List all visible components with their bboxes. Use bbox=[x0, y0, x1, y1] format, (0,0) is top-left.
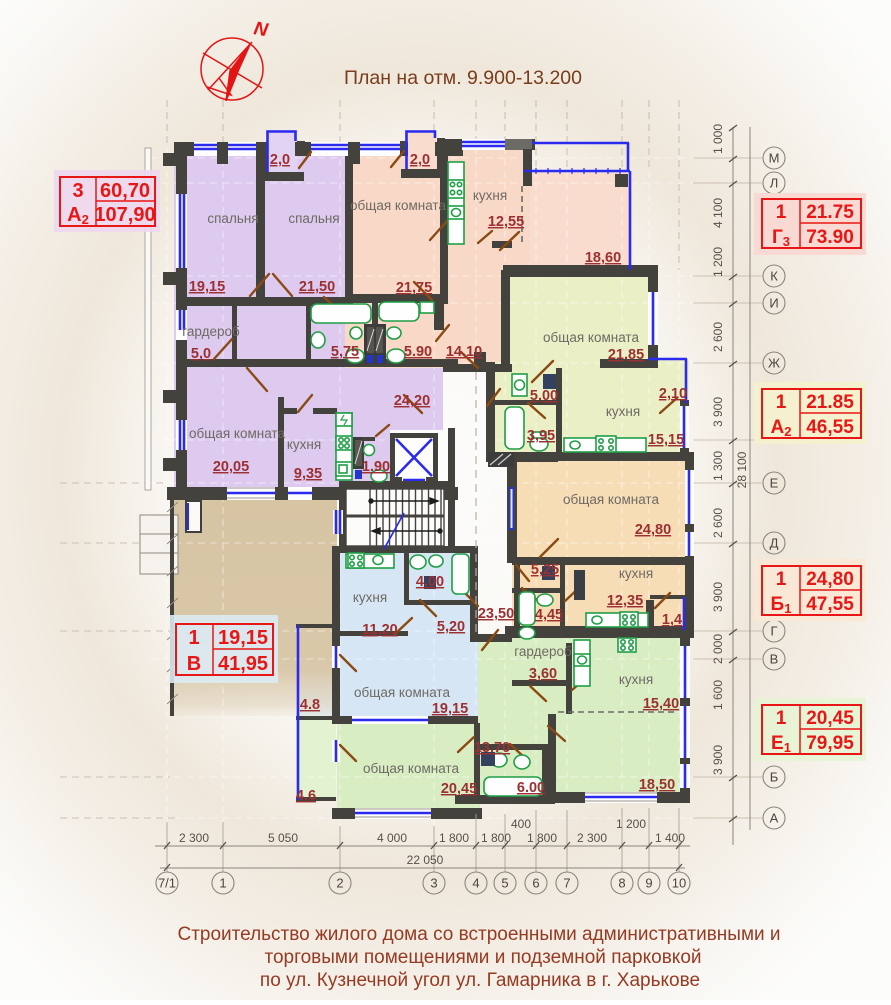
svg-text:12,55: 12,55 bbox=[488, 214, 524, 230]
svg-text:4.6: 4.6 bbox=[296, 788, 316, 804]
svg-text:18,50: 18,50 bbox=[639, 777, 675, 793]
svg-text:А: А bbox=[770, 811, 779, 826]
svg-text:73.90: 73.90 bbox=[806, 227, 854, 248]
svg-text:4 000: 4 000 bbox=[377, 831, 407, 845]
svg-text:торговыми помещениями и подзем: торговыми помещениями и подземной парков… bbox=[264, 947, 701, 968]
svg-text:79,95: 79,95 bbox=[806, 733, 854, 754]
svg-text:гардероб: гардероб bbox=[182, 324, 240, 339]
svg-text:1 800: 1 800 bbox=[439, 831, 469, 845]
svg-text:общая комната: общая комната bbox=[563, 492, 659, 507]
svg-text:1 600: 1 600 bbox=[711, 680, 725, 710]
svg-text:2 300: 2 300 bbox=[179, 831, 209, 845]
svg-text:6.00: 6.00 bbox=[517, 780, 545, 796]
svg-text:1: 1 bbox=[776, 202, 787, 223]
svg-text:1,4: 1,4 bbox=[662, 612, 682, 628]
svg-text:1.90: 1.90 bbox=[362, 459, 390, 475]
svg-text:1: 1 bbox=[776, 569, 787, 590]
svg-text:2,0: 2,0 bbox=[410, 152, 430, 168]
svg-text:18,60: 18,60 bbox=[585, 250, 621, 266]
svg-text:23,50: 23,50 bbox=[478, 606, 514, 622]
svg-text:5,25: 5,25 bbox=[531, 562, 559, 578]
svg-text:1: 1 bbox=[188, 627, 199, 649]
svg-text:5,00: 5,00 bbox=[530, 388, 558, 404]
svg-text:4: 4 bbox=[472, 876, 479, 891]
svg-text:В: В bbox=[187, 653, 201, 675]
svg-text:2: 2 bbox=[336, 876, 343, 891]
svg-text:9: 9 bbox=[645, 876, 652, 891]
svg-text:1 000: 1 000 bbox=[711, 124, 725, 154]
svg-text:1: 1 bbox=[776, 708, 787, 729]
svg-text:60,70: 60,70 bbox=[100, 180, 150, 202]
svg-text:кухня: кухня bbox=[606, 404, 640, 419]
svg-text:спальня: спальня bbox=[207, 211, 258, 226]
svg-text:24,80: 24,80 bbox=[806, 569, 854, 590]
svg-text:28 100: 28 100 bbox=[735, 451, 749, 488]
svg-text:кухня: кухня bbox=[619, 672, 653, 687]
svg-text:План на отм. 9.900-13.200: План на отм. 9.900-13.200 bbox=[344, 67, 582, 89]
svg-text:21,50: 21,50 bbox=[299, 279, 335, 295]
svg-text:5,20: 5,20 bbox=[437, 619, 465, 635]
svg-text:4 100: 4 100 bbox=[711, 198, 725, 228]
svg-text:1 200: 1 200 bbox=[711, 247, 725, 277]
svg-text:гардероб: гардероб bbox=[514, 644, 572, 659]
svg-text:21,75: 21,75 bbox=[396, 280, 432, 296]
svg-text:2,10: 2,10 bbox=[659, 386, 687, 402]
svg-text:2 600: 2 600 bbox=[711, 508, 725, 538]
svg-text:кухня: кухня bbox=[353, 590, 387, 605]
svg-text:3 900: 3 900 bbox=[711, 745, 725, 775]
svg-text:Л: Л bbox=[770, 176, 779, 191]
svg-text:21,85: 21,85 bbox=[608, 347, 644, 363]
svg-text:2,0: 2,0 bbox=[270, 152, 290, 168]
svg-text:Ж: Ж bbox=[768, 356, 780, 371]
svg-text:15,40: 15,40 bbox=[643, 696, 679, 712]
svg-text:5.90: 5.90 bbox=[404, 344, 432, 360]
svg-text:41,95: 41,95 bbox=[218, 653, 268, 675]
svg-text:9,35: 9,35 bbox=[294, 466, 322, 482]
svg-text:общая комната: общая комната bbox=[543, 330, 639, 345]
svg-text:общая комната: общая комната bbox=[363, 761, 459, 776]
svg-text:кухня: кухня bbox=[473, 188, 507, 203]
svg-text:М: М bbox=[769, 151, 780, 166]
svg-text:1 800: 1 800 bbox=[481, 831, 511, 845]
svg-text:Г: Г bbox=[770, 624, 777, 639]
svg-text:4.00: 4.00 bbox=[416, 574, 444, 590]
svg-text:6: 6 bbox=[532, 876, 539, 891]
svg-text:47,55: 47,55 bbox=[806, 594, 854, 615]
svg-text:20,05: 20,05 bbox=[213, 459, 249, 475]
svg-text:2 600: 2 600 bbox=[711, 322, 725, 352]
svg-text:1: 1 bbox=[776, 392, 787, 413]
svg-text:5: 5 bbox=[501, 876, 508, 891]
svg-text:3 900: 3 900 bbox=[711, 397, 725, 427]
svg-text:по ул. Кузнечной угол ул. Гама: по ул. Кузнечной угол ул. Гамарника в г.… bbox=[260, 970, 700, 991]
svg-text:5,0: 5,0 bbox=[191, 346, 211, 362]
svg-text:2 300: 2 300 bbox=[577, 831, 607, 845]
svg-text:И: И bbox=[769, 296, 778, 311]
svg-text:Строительство жилого дома со в: Строительство жилого дома со встроенными… bbox=[177, 924, 780, 945]
svg-text:13.70: 13.70 bbox=[474, 740, 510, 756]
svg-text:2 000: 2 000 bbox=[711, 634, 725, 664]
svg-text:спальня: спальня bbox=[288, 211, 339, 226]
svg-text:7/1: 7/1 bbox=[158, 876, 176, 891]
svg-text:19,15: 19,15 bbox=[432, 701, 468, 717]
svg-text:14.10: 14.10 bbox=[446, 344, 482, 360]
svg-text:1 200: 1 200 bbox=[616, 817, 646, 831]
svg-text:1: 1 bbox=[219, 876, 226, 891]
svg-text:3,95: 3,95 bbox=[527, 428, 555, 444]
svg-text:5 050: 5 050 bbox=[268, 831, 298, 845]
svg-text:Б: Б bbox=[770, 770, 779, 785]
svg-text:24,20: 24,20 bbox=[394, 393, 430, 409]
svg-text:кухня: кухня bbox=[287, 437, 321, 452]
svg-text:22 050: 22 050 bbox=[407, 853, 444, 867]
svg-text:24,80: 24,80 bbox=[635, 522, 671, 538]
svg-text:7: 7 bbox=[563, 876, 570, 891]
svg-text:4,45: 4,45 bbox=[535, 607, 563, 623]
svg-text:10: 10 bbox=[672, 876, 686, 891]
svg-text:1 300: 1 300 bbox=[711, 451, 725, 481]
svg-text:общая комната: общая комната bbox=[350, 198, 446, 213]
svg-text:общая комната: общая комната bbox=[189, 426, 285, 441]
svg-text:кухня: кухня bbox=[619, 566, 653, 581]
svg-text:20,45: 20,45 bbox=[441, 781, 477, 797]
svg-text:11,20: 11,20 bbox=[362, 622, 398, 638]
svg-text:В: В bbox=[770, 652, 779, 667]
svg-text:5,75: 5,75 bbox=[331, 344, 359, 360]
svg-text:3 900: 3 900 bbox=[711, 582, 725, 612]
svg-text:15,15: 15,15 bbox=[648, 432, 684, 448]
svg-text:Д: Д bbox=[770, 536, 779, 551]
svg-text:3: 3 bbox=[430, 876, 437, 891]
svg-text:107,90: 107,90 bbox=[94, 204, 155, 226]
svg-text:1 400: 1 400 bbox=[655, 831, 685, 845]
svg-text:3: 3 bbox=[72, 180, 83, 202]
svg-text:К: К bbox=[770, 269, 778, 284]
svg-text:12,35: 12,35 bbox=[607, 593, 643, 609]
svg-text:20,45: 20,45 bbox=[806, 708, 854, 729]
svg-text:400: 400 bbox=[511, 817, 531, 831]
svg-text:8: 8 bbox=[618, 876, 625, 891]
svg-text:21.85: 21.85 bbox=[806, 392, 854, 413]
svg-text:3,60: 3,60 bbox=[529, 666, 557, 682]
svg-text:4.8: 4.8 bbox=[300, 697, 320, 713]
svg-text:Е: Е bbox=[770, 476, 779, 491]
svg-text:1 800: 1 800 bbox=[527, 831, 557, 845]
svg-text:21.75: 21.75 bbox=[806, 202, 854, 223]
svg-text:46,55: 46,55 bbox=[806, 417, 854, 438]
svg-text:общая комната: общая комната bbox=[354, 685, 450, 700]
svg-text:19,15: 19,15 bbox=[189, 279, 225, 295]
svg-text:19,15: 19,15 bbox=[218, 627, 268, 649]
